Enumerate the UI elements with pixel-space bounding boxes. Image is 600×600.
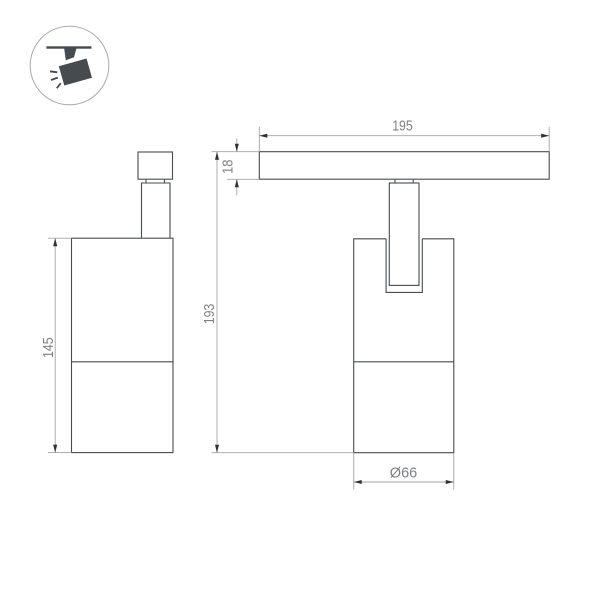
svg-text:193: 193 [201, 304, 218, 325]
svg-text:Ø66: Ø66 [390, 465, 418, 482]
svg-text:145: 145 [40, 337, 57, 358]
svg-text:195: 195 [392, 118, 413, 135]
svg-text:18: 18 [219, 160, 236, 175]
